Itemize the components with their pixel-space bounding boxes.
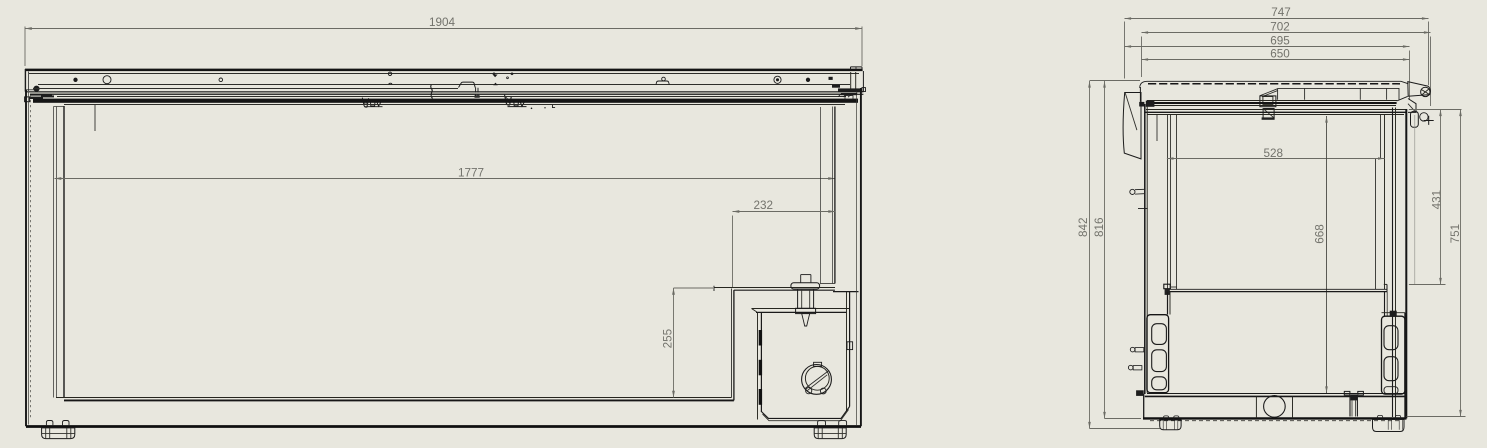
svg-text:232: 232 [753, 199, 773, 212]
svg-text:668: 668 [1314, 224, 1327, 244]
svg-text:1777: 1777 [458, 166, 484, 179]
svg-text:1904: 1904 [429, 16, 456, 29]
svg-text:650: 650 [1270, 47, 1290, 60]
svg-text:751: 751 [1449, 224, 1462, 244]
svg-text:528: 528 [1263, 147, 1283, 160]
svg-text:747: 747 [1271, 6, 1291, 19]
svg-text:695: 695 [1270, 35, 1290, 48]
svg-text:842: 842 [1077, 217, 1090, 237]
svg-text:702: 702 [1270, 21, 1290, 34]
svg-text:816: 816 [1093, 217, 1106, 237]
svg-text:431: 431 [1430, 190, 1443, 210]
svg-text:255: 255 [661, 328, 674, 348]
